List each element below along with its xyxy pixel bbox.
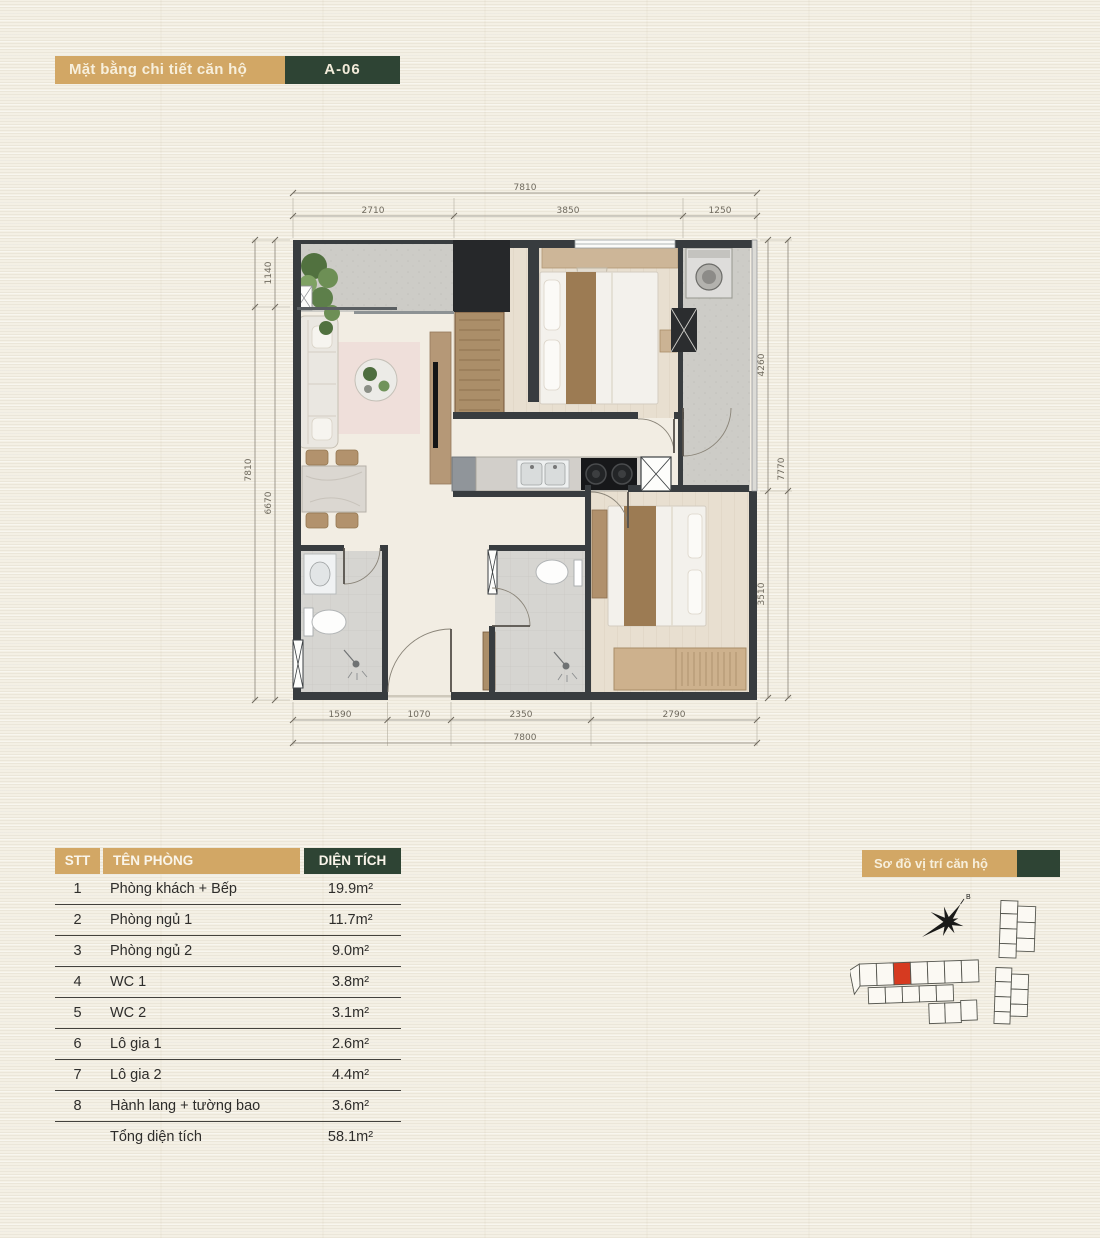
entry-threshold xyxy=(388,695,451,698)
window-wc2 xyxy=(488,550,497,594)
row-area-value: 3.6m² xyxy=(300,1098,401,1114)
toilet-wc1 xyxy=(304,608,346,636)
table-row: 8 Hành lang + tường bao 3.6m² xyxy=(55,1091,401,1122)
area-table-body: 1 Phòng khách + Bếp 19.9m² 2 Phòng ngủ 1… xyxy=(55,874,401,1152)
building-block-left xyxy=(850,960,980,1026)
dim-bottom-3: 2350 xyxy=(510,710,533,720)
dim-bottom-1: 1590 xyxy=(329,710,352,720)
building-block-right-top xyxy=(999,900,1036,958)
table-row: 4 WC 1 3.8m² xyxy=(55,967,401,998)
washing-machine xyxy=(686,248,732,298)
dim-top-1: 2710 xyxy=(362,206,385,216)
table-row: 6 Lô gia 1 2.6m² xyxy=(55,1029,401,1060)
window-wc1 xyxy=(293,640,303,688)
row-number: 5 xyxy=(55,1005,100,1021)
dim-right-2: 3510 xyxy=(757,582,767,605)
table-row: 1 Phòng khách + Bếp 19.9m² xyxy=(55,874,401,905)
col-header-stt: STT xyxy=(55,848,100,874)
site-plan: B xyxy=(850,888,1060,1038)
col-header-room: TÊN PHÒNG xyxy=(103,848,300,874)
dim-bottom-4: 2790 xyxy=(663,710,686,720)
row-room-name: Phòng ngủ 2 xyxy=(100,943,300,959)
table-row: Tổng diện tích 58.1m² xyxy=(55,1122,401,1152)
col-header-area: DIỆN TÍCH xyxy=(304,848,401,874)
compass-icon: B xyxy=(922,894,971,937)
toilet-wc2 xyxy=(536,560,582,586)
sink xyxy=(517,460,569,488)
row-number: 6 xyxy=(55,1036,100,1052)
location-header: Sơ đồ vị trí căn hộ xyxy=(862,850,1060,877)
unit-code-badge: A-06 xyxy=(285,56,400,84)
dim-left-2: 6670 xyxy=(264,491,274,514)
row-area-value: 9.0m² xyxy=(300,943,401,959)
row-number: 8 xyxy=(55,1098,100,1114)
table-row: 5 WC 2 3.1m² xyxy=(55,998,401,1029)
coffee-table xyxy=(355,359,397,401)
dim-top-overall: 7810 xyxy=(514,183,537,193)
dim-top-3: 1250 xyxy=(709,206,732,216)
row-number: 1 xyxy=(55,881,100,897)
row-room-name: Tổng diện tích xyxy=(100,1129,300,1145)
wardrobe-bedroom-1 xyxy=(455,312,504,416)
table-row: 3 Phòng ngủ 2 9.0m² xyxy=(55,936,401,967)
row-area-value: 19.9m² xyxy=(300,881,401,897)
row-room-name: WC 1 xyxy=(100,974,300,990)
row-room-name: Lô gia 2 xyxy=(100,1067,300,1083)
dim-right-1: 4260 xyxy=(757,353,767,376)
table-row: 2 Phòng ngủ 1 11.7m² xyxy=(55,905,401,936)
table-row: 7 Lô gia 2 4.4m² xyxy=(55,1060,401,1091)
row-room-name: WC 2 xyxy=(100,1005,300,1021)
location-title-square xyxy=(1017,850,1060,877)
highlighted-unit xyxy=(893,962,911,985)
shaft-box-kitchen xyxy=(641,457,671,491)
building-block-right-bottom xyxy=(994,967,1029,1024)
row-number: 7 xyxy=(55,1067,100,1083)
row-room-name: Lô gia 1 xyxy=(100,1036,300,1052)
dim-bottom-overall: 7800 xyxy=(514,733,537,743)
dim-left-overall: 7810 xyxy=(244,458,254,481)
area-table-header: STT TÊN PHÒNG DIỆN TÍCH xyxy=(55,848,401,874)
area-table: STT TÊN PHÒNG DIỆN TÍCH 1 Phòng khách + … xyxy=(55,848,401,1152)
row-room-name: Phòng khách + Bếp xyxy=(100,881,300,897)
side-cabinet xyxy=(592,510,607,598)
row-number: 3 xyxy=(55,943,100,959)
row-area-value: 3.8m² xyxy=(300,974,401,990)
location-title: Sơ đồ vị trí căn hộ xyxy=(862,850,1017,877)
bed-2 xyxy=(608,506,706,626)
shaft-box-ac xyxy=(671,308,697,352)
row-area-value: 3.1m² xyxy=(300,1005,401,1021)
floor-plan: 7810 2710 3850 1250 1590 1070 2350 2790 … xyxy=(240,180,800,770)
tv-cabinet xyxy=(430,332,451,484)
fridge xyxy=(452,457,476,491)
page-header: Mặt bằng chi tiết căn hộ A-06 xyxy=(55,56,400,84)
site-plan-drawing: B xyxy=(850,888,1060,1038)
dim-top-2: 3850 xyxy=(557,206,580,216)
row-number: 2 xyxy=(55,912,100,928)
bedroom-1 xyxy=(540,244,678,404)
row-area-value: 58.1m² xyxy=(300,1129,401,1145)
bed-1 xyxy=(540,272,658,404)
floor-plan-drawing: 7810 2710 3850 1250 1590 1070 2350 2790 … xyxy=(240,180,800,770)
row-room-name: Phòng ngủ 1 xyxy=(100,912,300,928)
row-area-value: 11.7m² xyxy=(300,912,401,928)
row-room-name: Hành lang + tường bao xyxy=(100,1098,300,1114)
dim-right-overall: 7770 xyxy=(777,457,787,480)
compass-north-label: B xyxy=(966,894,971,901)
dim-bottom-2: 1070 xyxy=(408,710,431,720)
row-area-value: 2.6m² xyxy=(300,1036,401,1052)
page-title: Mặt bằng chi tiết căn hộ xyxy=(55,56,285,84)
row-area-value: 4.4m² xyxy=(300,1067,401,1083)
wardrobe-bedroom-2 xyxy=(614,648,746,690)
sofa xyxy=(298,316,338,448)
row-number: 4 xyxy=(55,974,100,990)
dim-left-1: 1140 xyxy=(264,261,274,284)
logia-2 xyxy=(686,248,732,298)
